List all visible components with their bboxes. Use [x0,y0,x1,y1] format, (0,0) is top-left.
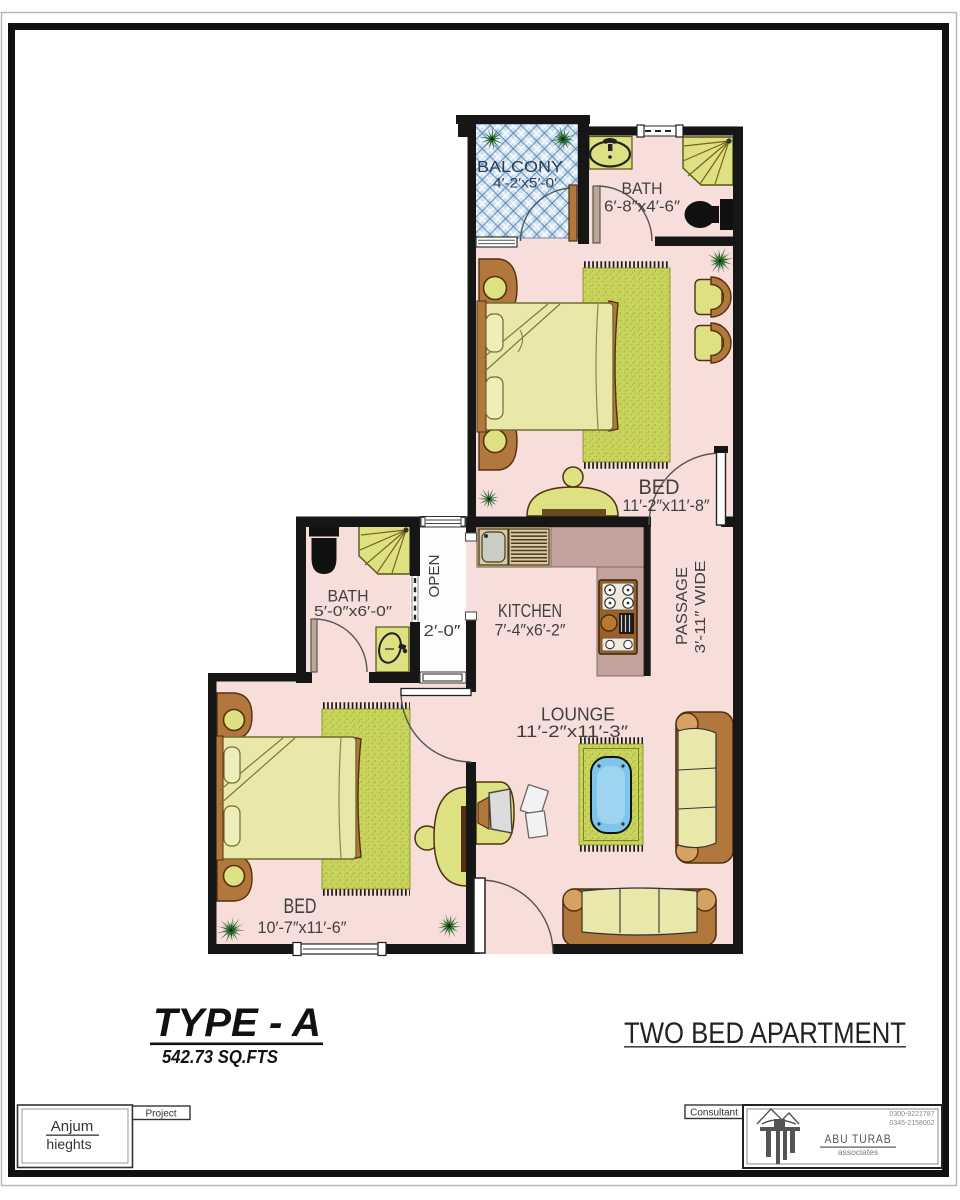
svg-text:BALCONY: BALCONY [477,159,563,176]
svg-text:6′-8″x4′-6″: 6′-8″x4′-6″ [604,199,680,216]
svg-text:TWO BED APARTMENT: TWO BED APARTMENT [624,1017,906,1050]
svg-text:ABU TURAB: ABU TURAB [825,1134,892,1146]
svg-text:11′-2″x11′-8″: 11′-2″x11′-8″ [623,496,710,515]
svg-text:0345-2158002: 0345-2158002 [889,1120,934,1127]
svg-text:5′-0″x6′-0″: 5′-0″x6′-0″ [314,603,393,620]
svg-text:542.73 SQ.FTS: 542.73 SQ.FTS [162,1047,278,1067]
svg-text:Project: Project [145,1109,176,1120]
svg-text:OPEN: OPEN [426,555,443,598]
svg-text:11′-2″x11′-3″: 11′-2″x11′-3″ [516,722,628,741]
svg-text:Anjum: Anjum [51,1118,94,1135]
svg-text:7′-4″x6′-2″: 7′-4″x6′-2″ [495,622,566,640]
svg-text:hieghts: hieghts [46,1136,91,1152]
svg-text:associates: associates [838,1147,878,1157]
svg-text:PASSAGE: PASSAGE [674,567,691,645]
svg-text:2′-0″: 2′-0″ [424,623,462,640]
svg-text:4′-2′x5′-0′: 4′-2′x5′-0′ [493,176,558,191]
svg-text:10′-7″x11′-6″: 10′-7″x11′-6″ [258,918,347,937]
svg-text:0300-9221787: 0300-9221787 [889,1111,934,1118]
svg-text:KITCHEN: KITCHEN [498,601,562,621]
svg-text:3′-11″ WIDE: 3′-11″ WIDE [693,560,709,653]
svg-text:BED: BED [284,895,317,918]
svg-text:BATH: BATH [622,179,663,198]
svg-text:TYPE - A: TYPE - A [153,1001,321,1045]
svg-text:Consultant: Consultant [690,1108,738,1119]
